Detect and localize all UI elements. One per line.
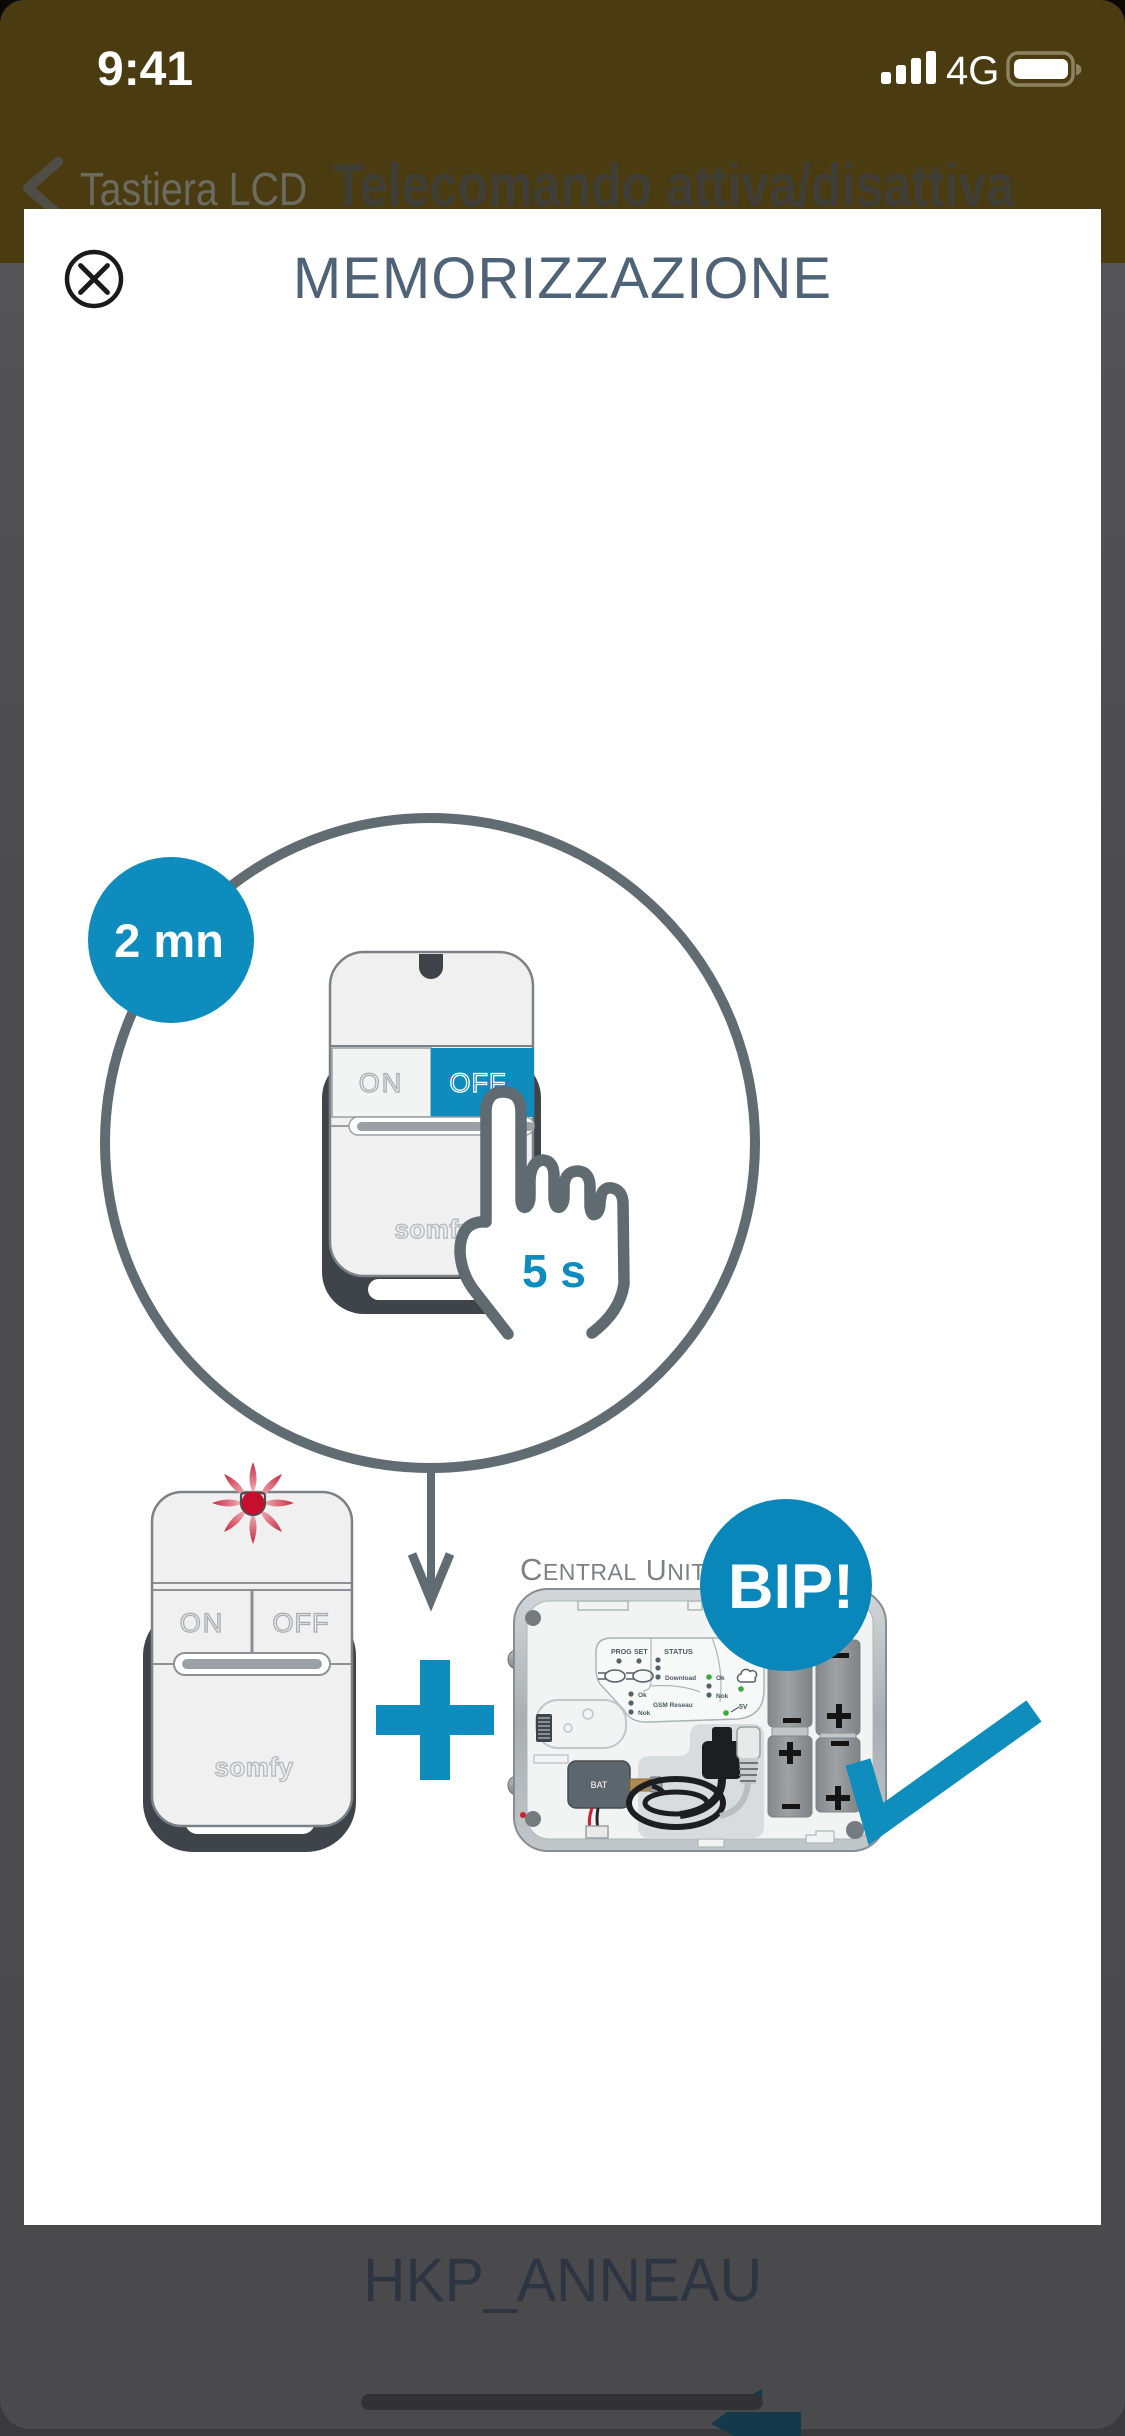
svg-text:PROG: PROG xyxy=(611,1649,632,1656)
svg-text:Nok: Nok xyxy=(716,1693,729,1700)
svg-text:OFF: OFF xyxy=(273,1608,330,1638)
svg-text:2 mn: 2 mn xyxy=(114,914,224,967)
svg-text:CENTRAL UNIT: CENTRAL UNIT xyxy=(520,1552,706,1587)
svg-text:Download: Download xyxy=(665,1675,696,1682)
svg-text:5V: 5V xyxy=(739,1704,748,1711)
svg-text:Nok: Nok xyxy=(638,1710,651,1717)
svg-text:somfy: somfy xyxy=(214,1752,293,1782)
svg-text:5 s: 5 s xyxy=(522,1245,586,1297)
svg-text:SET: SET xyxy=(634,1649,648,1656)
svg-text:BIP!: BIP! xyxy=(728,1552,854,1622)
svg-text:GSM Reseau: GSM Reseau xyxy=(653,1702,693,1709)
svg-text:ON: ON xyxy=(180,1608,225,1638)
svg-text:Ok: Ok xyxy=(638,1692,647,1699)
svg-text:4G: 4G xyxy=(946,49,999,93)
svg-text:BAT: BAT xyxy=(591,1780,608,1790)
svg-text:Ok: Ok xyxy=(716,1675,725,1682)
svg-text:ON: ON xyxy=(359,1068,404,1098)
svg-text:STATUS: STATUS xyxy=(664,1647,693,1656)
